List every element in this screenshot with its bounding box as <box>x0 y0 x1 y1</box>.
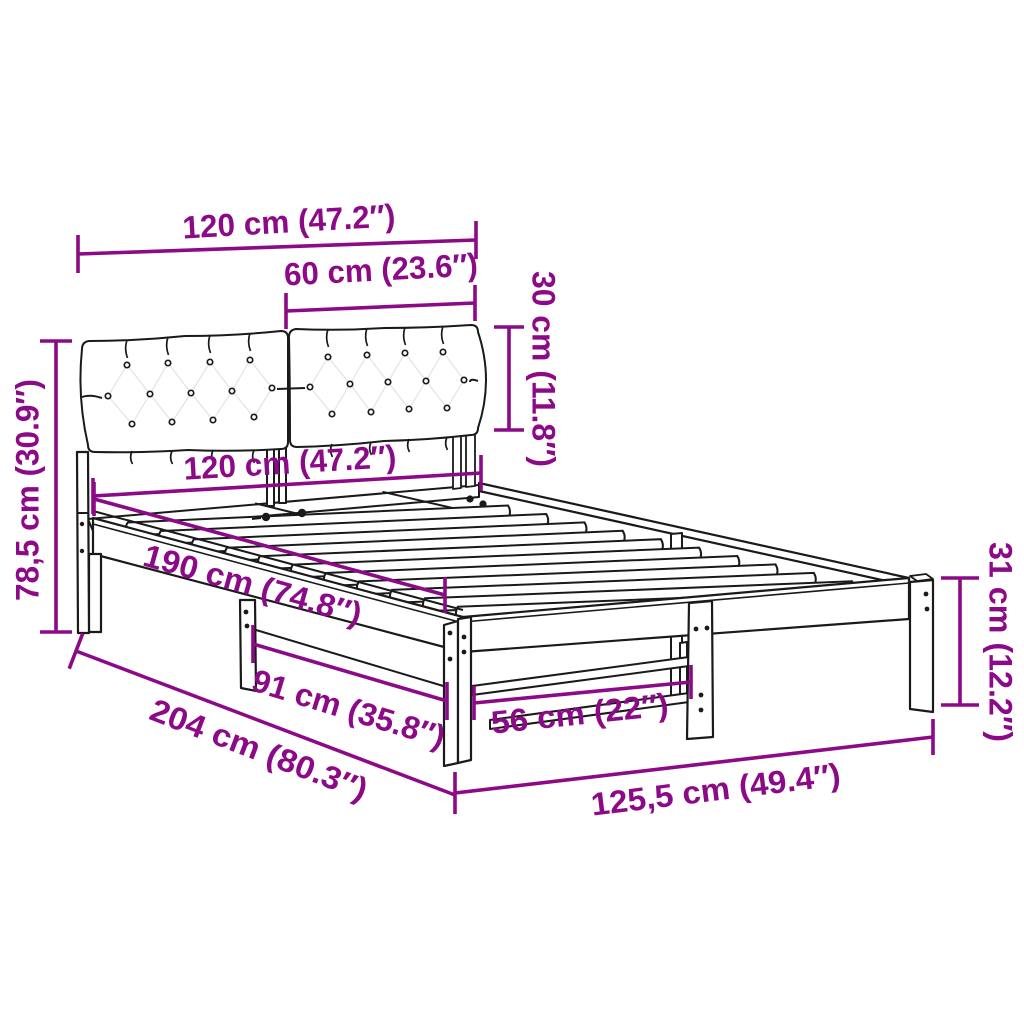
svg-text:30 cm (11.8″): 30 cm (11.8″) <box>526 271 562 467</box>
svg-text:78,5 cm (30.9″): 78,5 cm (30.9″) <box>9 379 45 601</box>
svg-text:31 cm (12.2″): 31 cm (12.2″) <box>983 542 1019 742</box>
